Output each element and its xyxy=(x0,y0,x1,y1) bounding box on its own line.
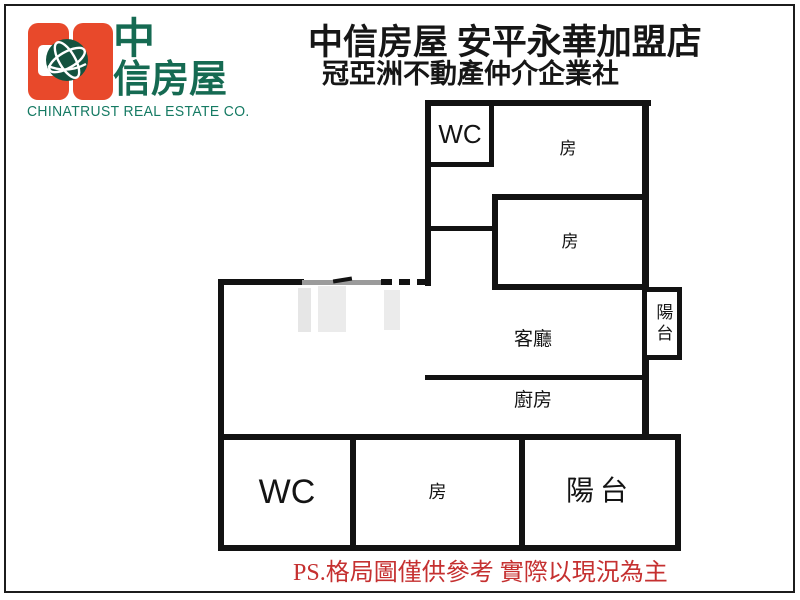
room-label-bedroom-middle: 房 xyxy=(498,200,642,284)
wall-bottom-row-right xyxy=(675,434,681,551)
wall-main-top-dashed xyxy=(381,279,428,285)
watermark-fragment xyxy=(298,288,311,332)
wall-bottom-row-bottom xyxy=(218,545,681,551)
room-label-wc-lower: WC xyxy=(224,440,350,545)
wall-corridor-stub xyxy=(425,226,497,231)
flyer-canvas: 中 信房屋 CHINATRUST REAL ESTATE CO. 中信房屋 安平… xyxy=(0,0,800,600)
wall-upper-left xyxy=(425,100,431,286)
store-subtitle: 冠亞洲不動產仲介企業社 xyxy=(322,61,619,88)
wall-bedroom-middle-bottom xyxy=(492,284,649,290)
watermark-fragment xyxy=(384,290,400,330)
room-balcony-side: 陽台 xyxy=(642,287,682,360)
wall-right-main xyxy=(642,100,649,440)
wall-kitchen-divider xyxy=(425,375,645,380)
room-label-living-room: 客廳 xyxy=(493,328,573,352)
store-title: 中信房屋 安平永華加盟店 xyxy=(308,25,702,60)
logo-chars-bottom: 信房屋 xyxy=(113,61,227,99)
watermark-fragment xyxy=(318,286,346,332)
room-label-kitchen: 廚房 xyxy=(493,389,573,413)
logo-caption: CHINATRUST REAL ESTATE CO. xyxy=(27,104,250,120)
room-label-balcony-lower: 陽台 xyxy=(525,440,675,545)
room-label-bedroom-lower: 房 xyxy=(356,440,519,545)
logo-char-top: 中 xyxy=(113,19,155,61)
room-label-wc-upper: WC xyxy=(432,104,488,164)
room-label-bedroom-top: 房 xyxy=(494,104,642,194)
disclaimer-note: PS.格局圖僅供參考 實際以現況為主 xyxy=(293,561,668,585)
wall-main-top-solid xyxy=(218,279,304,285)
globe-icon xyxy=(44,37,90,83)
room-label-balcony-side: 陽台 xyxy=(653,303,672,345)
